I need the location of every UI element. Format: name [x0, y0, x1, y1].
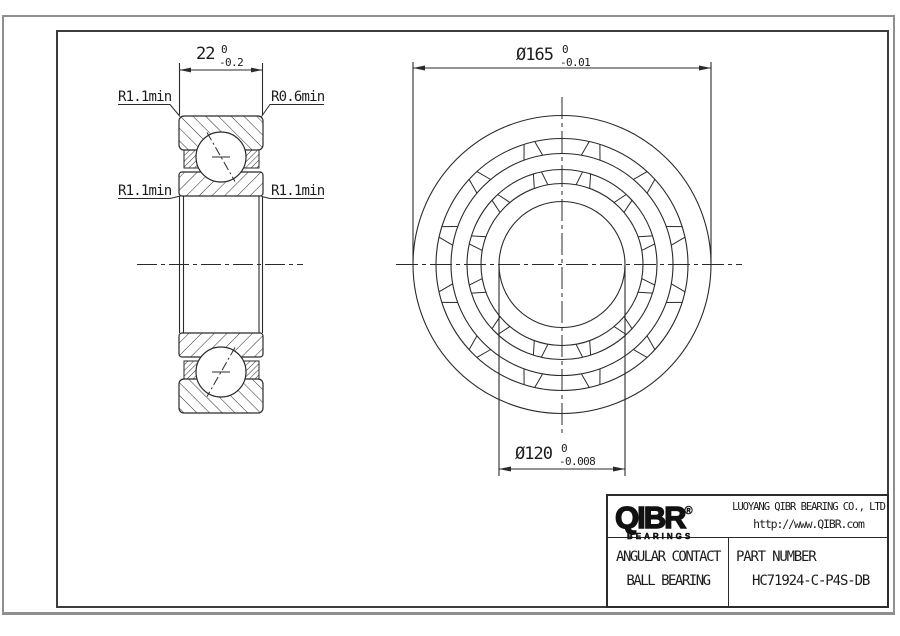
width-dim-tol-lower: -0.2 [219, 56, 243, 69]
od-dim-arrow-right [699, 66, 711, 71]
part-number-value: HC71924-C-P4S-DB [752, 573, 887, 589]
od-dim-arrow-left [413, 66, 425, 71]
width-dim-tol-upper: 0 [221, 43, 227, 56]
width-dim-arrow-left [180, 68, 192, 73]
od-dimension [413, 62, 711, 263]
title-block-detail-row: ANGULAR CONTACT BALL BEARING PART NUMBER… [608, 538, 887, 606]
radius-label-top-left: R1.1min [118, 89, 172, 105]
radius-label-top-right: R0.6min [271, 89, 325, 105]
drawing-sheet: 22 0 -0.2 R1.1min R0.6min R1.1min R1.1mi… [0, 0, 900, 636]
radius-label-mid-right: R1.1min [271, 183, 325, 199]
bore-dim-tol-upper: 0 [561, 442, 567, 455]
title-block-header-row: QIBR® BEARINGS LUOYANG QIBR BEARING CO.,… [608, 496, 887, 538]
od-dim-value: Ø165 [516, 45, 553, 65]
bore-dim-tol-lower: -0.008 [559, 455, 595, 468]
section-view: 22 0 -0.2 R1.1min R0.6min R1.1min R1.1mi… [118, 43, 325, 413]
registered-trademark-icon: ® [685, 505, 693, 517]
bore-dim-value: Ø120 [515, 444, 553, 464]
width-dim-value: 22 [196, 44, 214, 64]
brand-logo-text: QIBR® [615, 498, 730, 531]
od-dim-tol-upper: 0 [562, 43, 568, 56]
bore-dim-arrow-left [499, 467, 511, 472]
front-view: Ø165 0 -0.01 Ø120 0 -0.008 [396, 43, 742, 476]
company-name: LUOYANG QIBR BEARING CO., LTD [730, 501, 887, 513]
bore-dim-arrow-right [613, 467, 625, 472]
company-info: LUOYANG QIBR BEARING CO., LTD http://www… [730, 496, 887, 537]
company-website: http://www.QIBR.com [730, 517, 887, 531]
part-number-cell: PART NUMBER HC71924-C-P4S-DB [729, 538, 887, 606]
product-type-cell: ANGULAR CONTACT BALL BEARING [608, 538, 729, 606]
width-dimension [180, 63, 263, 115]
title-block: QIBR® BEARINGS LUOYANG QIBR BEARING CO.,… [606, 494, 889, 608]
brand-logo: QIBR® BEARINGS [608, 496, 730, 537]
product-type-line1: ANGULAR CONTACT [608, 549, 728, 565]
product-type-line2: BALL BEARING [608, 573, 728, 589]
part-number-label: PART NUMBER [736, 549, 887, 565]
od-dim-tol-lower: -0.01 [560, 56, 590, 69]
width-dim-arrow-right [251, 68, 263, 73]
radius-label-mid-left: R1.1min [118, 183, 172, 199]
